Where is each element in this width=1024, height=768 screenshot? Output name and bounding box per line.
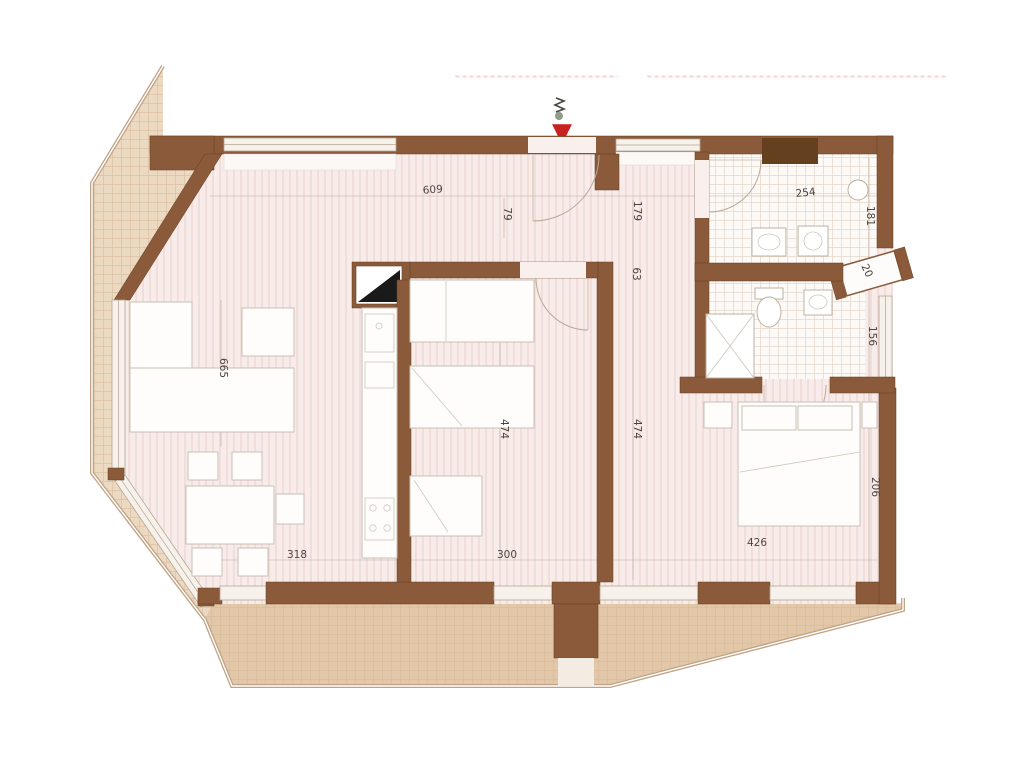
wall-segment <box>266 582 494 604</box>
pillow <box>798 406 852 430</box>
chair <box>192 548 222 576</box>
nightstand <box>704 402 732 428</box>
washing-machine <box>798 226 828 256</box>
desk <box>410 476 482 536</box>
wall-segment <box>597 262 613 582</box>
dimension-label-14: 206 <box>869 477 881 497</box>
door-opening <box>695 160 709 218</box>
wc-sink <box>804 290 832 315</box>
dimension-label-3: 63 <box>630 267 642 280</box>
chair <box>238 548 268 576</box>
chair <box>232 452 262 480</box>
wall-segment <box>552 582 600 604</box>
window-sill <box>616 152 700 165</box>
dimension-label-9: 474 <box>498 419 510 439</box>
pillow <box>742 406 796 430</box>
dimension-label-8: 665 <box>217 358 229 378</box>
dimension-label-7: 156 <box>866 326 878 346</box>
dining-table <box>186 486 274 544</box>
kitchen <box>362 308 397 558</box>
floor-plan: ▼ <box>0 0 1024 768</box>
window <box>220 586 268 600</box>
wall-segment <box>877 136 893 248</box>
dimension-label-4: 254 <box>795 186 817 200</box>
window <box>600 586 698 600</box>
dimension-label-10: 474 <box>631 419 643 439</box>
bathroom-sink <box>752 228 786 256</box>
faded-watermark-text <box>456 76 948 77</box>
bathroom-floor <box>708 154 877 263</box>
kitchen-counter <box>362 308 397 558</box>
wall-segment <box>108 468 124 480</box>
round-basin <box>848 180 868 200</box>
door-opening <box>520 262 586 278</box>
balcony-pillar-base <box>558 658 594 686</box>
single-bed <box>410 280 534 342</box>
shaft <box>762 138 818 164</box>
window <box>494 586 552 600</box>
nightstand <box>862 402 877 428</box>
entrance-annotation-mark <box>555 98 564 120</box>
dimension-label-5: 181 <box>864 206 876 226</box>
dimension-label-11: 318 <box>287 549 307 561</box>
wall-segment <box>830 377 895 393</box>
dimension-label-2: 179 <box>631 201 643 221</box>
wall-segment <box>698 582 770 604</box>
entrance-door-opening <box>528 137 596 153</box>
chair <box>276 494 304 524</box>
sofa <box>130 368 294 432</box>
wall-segment <box>695 263 843 281</box>
wall-segment <box>397 280 411 582</box>
balcony-pillar <box>554 604 598 658</box>
window <box>770 586 856 600</box>
wall-segment <box>680 377 762 393</box>
coffee-table <box>242 308 294 356</box>
dimension-label-1: 79 <box>501 207 513 220</box>
dimension-label-13: 426 <box>747 537 767 549</box>
toilet-bowl <box>757 297 781 327</box>
window-sill <box>224 154 396 170</box>
single-bed <box>410 366 534 428</box>
chair <box>188 452 218 480</box>
wall-segment <box>198 588 222 604</box>
dimension-label-0: 609 <box>422 183 443 196</box>
dimension-label-12: 300 <box>497 549 517 561</box>
